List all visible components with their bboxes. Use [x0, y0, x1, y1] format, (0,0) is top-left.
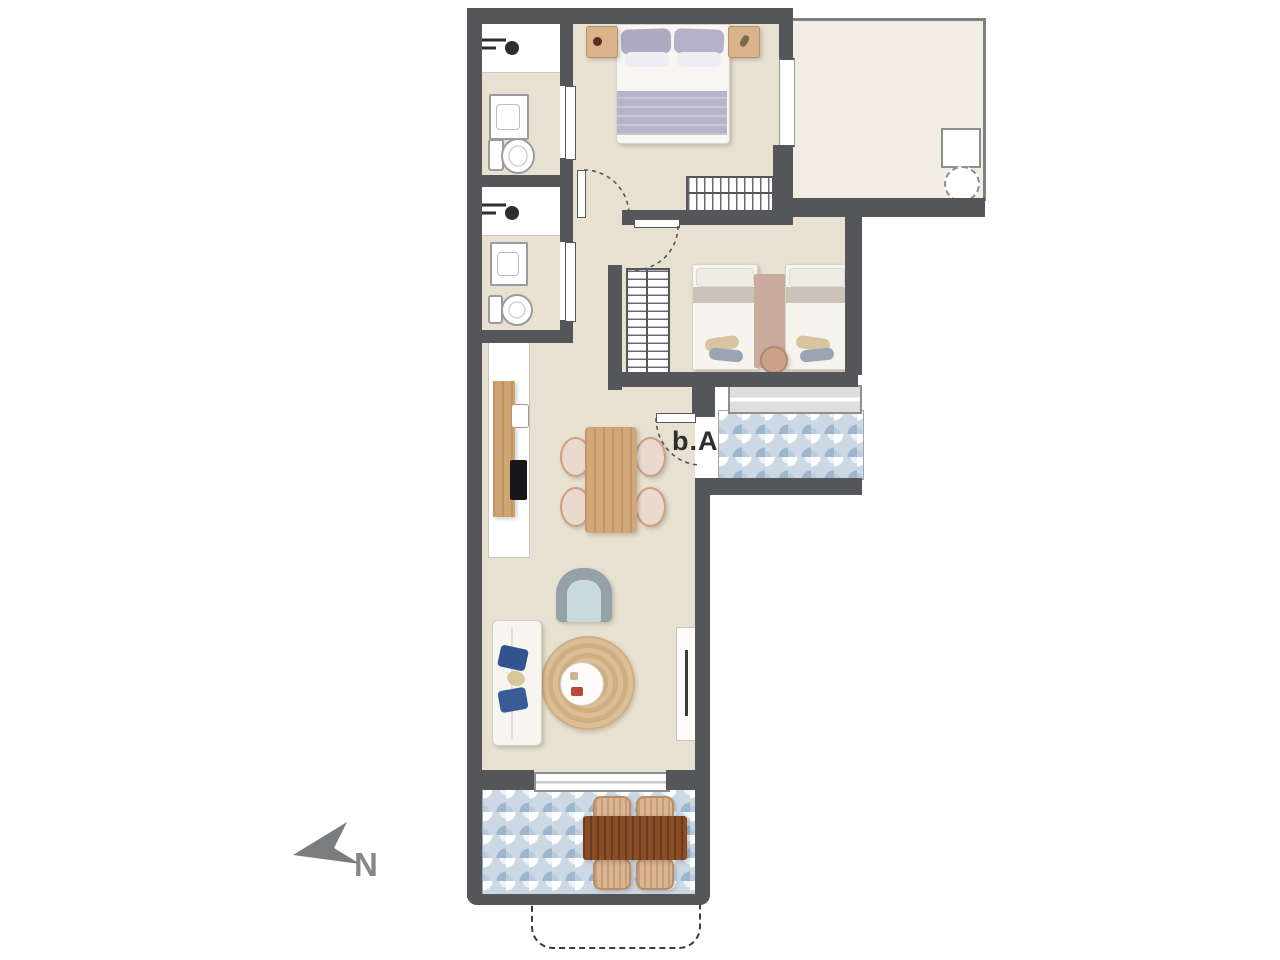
- single-bed-2-band: [786, 287, 846, 303]
- window-bedroom2-balcony: [728, 385, 862, 414]
- sliding-door-bath2: [565, 242, 576, 322]
- bed-pillow-left: [621, 28, 672, 55]
- wall-master-corner: [773, 145, 793, 225]
- projection-outline: [531, 901, 701, 949]
- wall-bath-right-a: [560, 24, 573, 86]
- balcony-chair-4: [636, 858, 674, 890]
- entrance-door-label: b.A: [672, 426, 719, 457]
- nightstand-right: [728, 26, 760, 58]
- wardrobe-bedroom2: [626, 268, 670, 378]
- terrace-washer: [944, 166, 980, 202]
- wardrobe-bedroom2-rail: [646, 270, 648, 376]
- single-bed-2: [785, 264, 849, 370]
- balcony-entrance-tiles: [718, 410, 864, 480]
- coffee-table-decor2: [571, 687, 583, 696]
- bed-pillow-right-2: [677, 52, 721, 67]
- wall-terrace-bottom: [787, 198, 985, 217]
- sink-bath2: [490, 242, 528, 286]
- kitchen-cooktop: [510, 460, 527, 500]
- single-bed-1-pillow: [696, 268, 754, 287]
- door-leaf-master: [577, 170, 586, 218]
- terrace-cabinet: [941, 128, 981, 168]
- bed-pillow-right: [674, 28, 725, 55]
- wall-balcony-right: [695, 770, 710, 905]
- bed-pillow-left-2: [625, 52, 669, 67]
- bedroom2-pouf: [760, 346, 788, 374]
- sofa-pillow-blue-1: [497, 644, 529, 671]
- balcony-chair-3: [593, 858, 631, 890]
- armchair-seat: [567, 580, 601, 622]
- door-leaf-entrance: [656, 413, 696, 423]
- armchair: [556, 568, 612, 622]
- single-bed-2-pillow: [789, 268, 845, 287]
- wall-bath-right-b: [560, 158, 573, 242]
- dining-chair-3: [635, 437, 666, 477]
- floor-plan: b.A N: [0, 0, 1280, 960]
- wall-left-outer: [467, 8, 482, 898]
- wardrobe-master: [686, 176, 774, 212]
- sofa: [492, 620, 542, 746]
- wall-balcony-entrance-bottom: [695, 478, 862, 495]
- double-bed: [616, 24, 730, 144]
- wall-bedroom2-bottom: [608, 372, 858, 387]
- dining-chair-4: [635, 487, 666, 527]
- single-bed-1-decor2: [708, 347, 743, 362]
- bed-blanket: [617, 91, 727, 135]
- sliding-door-bath1: [565, 86, 576, 160]
- balcony-table: [583, 816, 687, 860]
- single-bed-2-decor2: [799, 347, 834, 362]
- dining-table: [585, 427, 637, 533]
- nightstand-right-decor: [738, 34, 750, 48]
- single-bed-1-band: [693, 287, 755, 303]
- nightstand-left-decor: [593, 37, 602, 46]
- coffee-table-decor1: [570, 672, 578, 680]
- sink-bath1: [489, 94, 529, 140]
- nightstand-left: [586, 26, 618, 58]
- coffee-table: [560, 662, 604, 706]
- shower-bath2: [482, 187, 560, 236]
- wardrobe-master-rail: [688, 192, 772, 194]
- wall-terrace-left-upper: [779, 8, 793, 58]
- sink-bath1-basin: [496, 104, 520, 130]
- wall-bath-right-c: [560, 320, 573, 343]
- wall-balcony-bottom-rail: [467, 894, 710, 905]
- wall-living-right: [695, 478, 710, 775]
- window-living-balcony: [534, 772, 670, 792]
- wall-bedroom2-right: [845, 213, 862, 375]
- wall-living-bottom-left: [482, 770, 534, 790]
- compass-north-label: N: [354, 846, 378, 884]
- north-arrow-icon: [293, 822, 360, 864]
- window-master-terrace: [779, 58, 795, 147]
- single-bed-1: [692, 264, 758, 370]
- wall-entrance-pillar: [692, 383, 715, 417]
- wall-top-outer: [467, 8, 793, 24]
- sofa-pillow-blue-2: [497, 687, 528, 714]
- door-leaf-bedroom2: [634, 219, 680, 228]
- tv-screen: [685, 650, 688, 716]
- kitchen-sink: [511, 404, 529, 428]
- sink-bath2-basin: [497, 252, 519, 276]
- shower-bath1: [482, 24, 560, 73]
- sofa-pillow-beige: [505, 668, 527, 688]
